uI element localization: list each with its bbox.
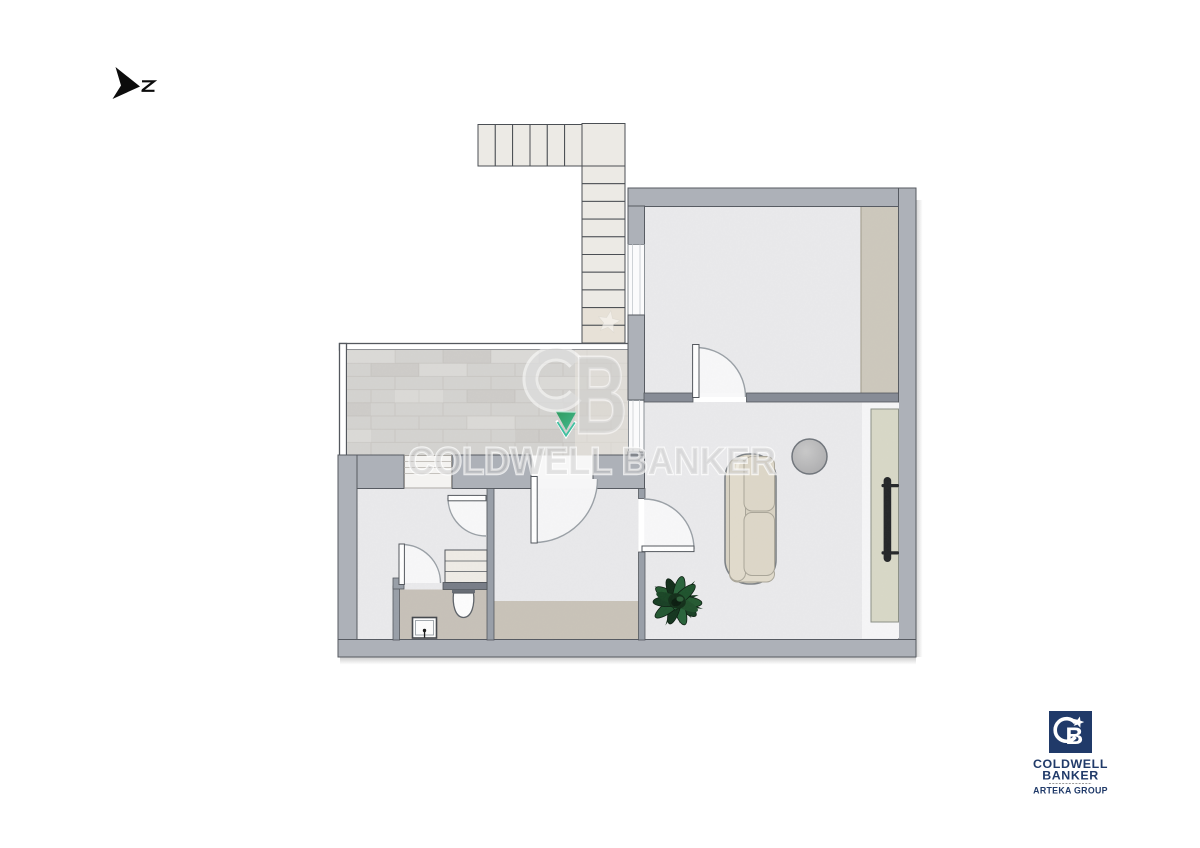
svg-text:B: B [1066, 723, 1084, 750]
svg-text:BANKER: BANKER [1042, 769, 1099, 783]
svg-text:B: B [574, 334, 627, 457]
svg-text:ARTEKA GROUP: ARTEKA GROUP [1033, 786, 1108, 796]
svg-text:COLDWELL BANKER: COLDWELL BANKER [408, 441, 776, 483]
